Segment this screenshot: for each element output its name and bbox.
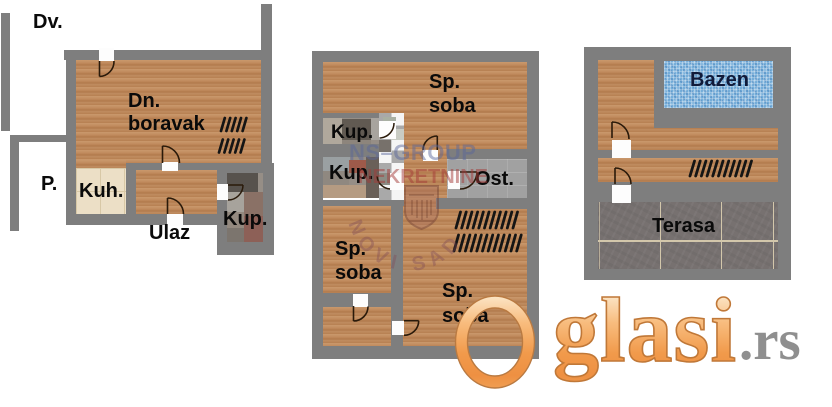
- svg-text:NS–GROUP: NS–GROUP: [349, 140, 476, 165]
- svg-text:.rs: .rs: [739, 309, 801, 372]
- svg-text:glasi: glasi: [553, 279, 737, 381]
- svg-text:NOVI SAD: NOVI SAD: [344, 217, 469, 277]
- svg-text:NEKRETNINE: NEKRETNINE: [358, 166, 488, 188]
